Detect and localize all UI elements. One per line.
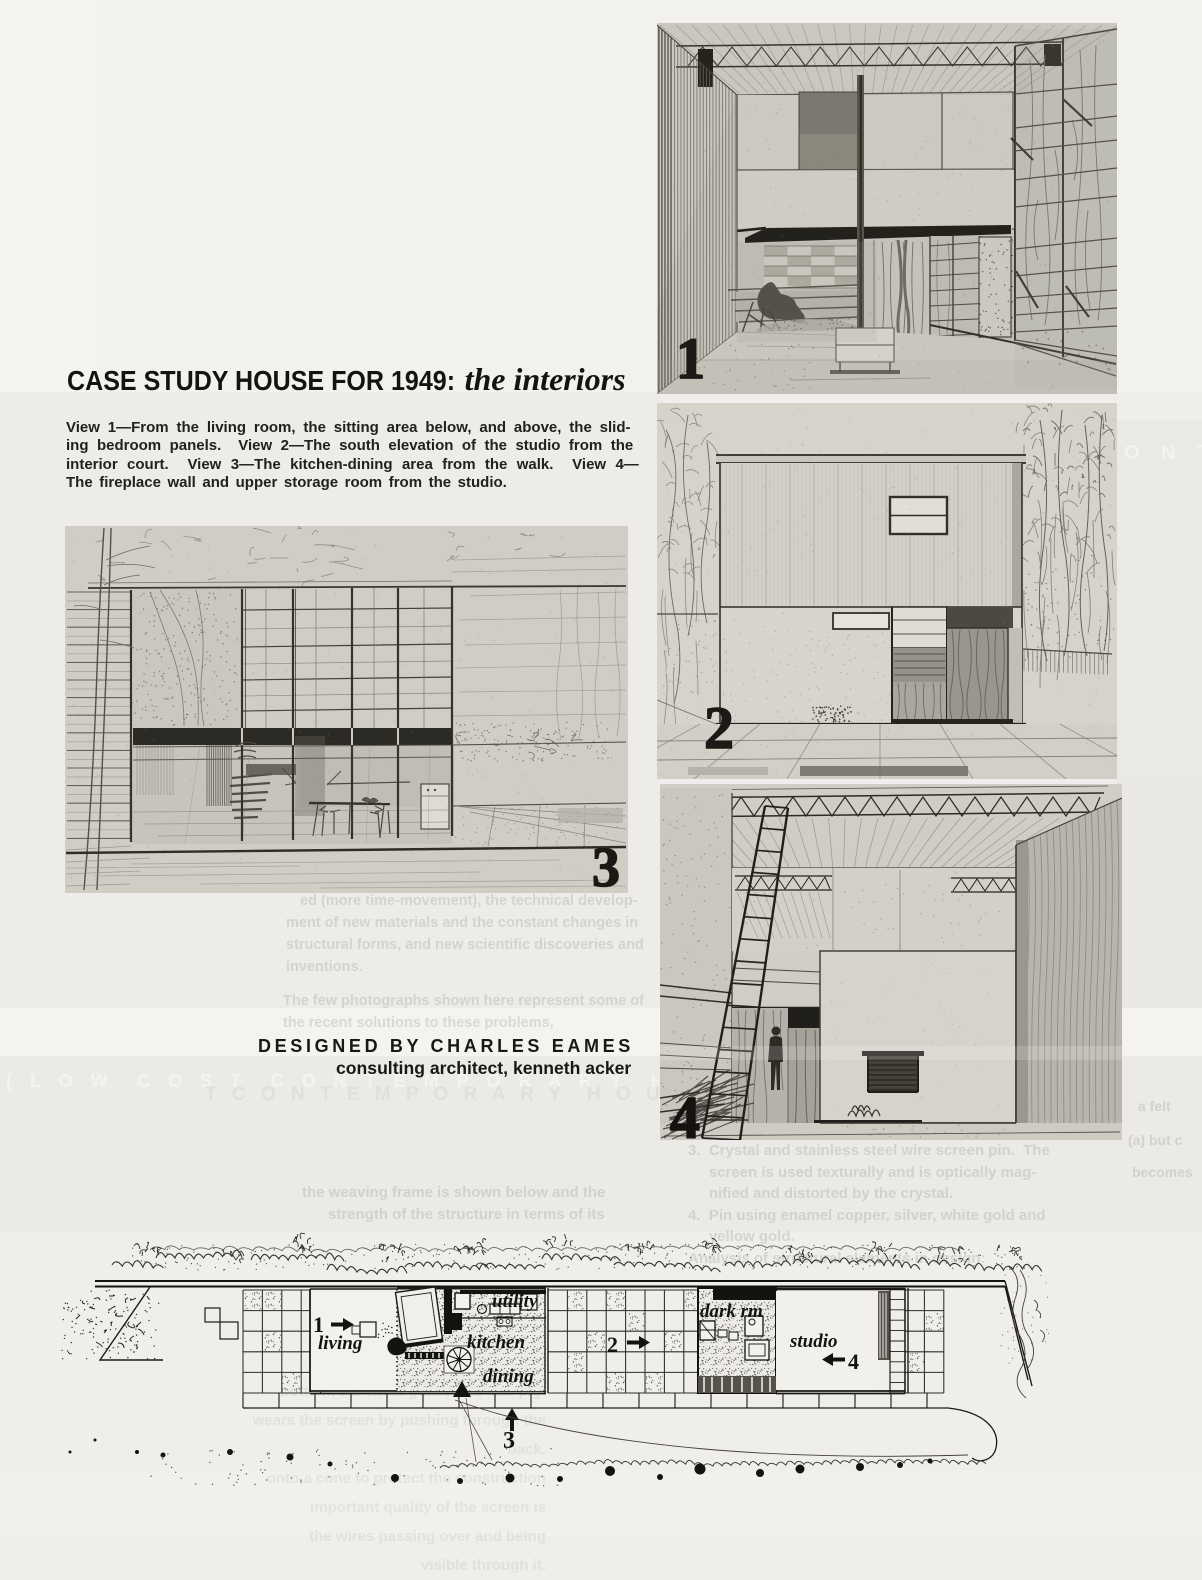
svg-text:utility: utility (492, 1291, 538, 1312)
svg-text:dining: dining (483, 1366, 534, 1387)
svg-text:dark rm: dark rm (700, 1301, 763, 1322)
svg-text:2: 2 (704, 695, 734, 761)
svg-text:4: 4 (848, 1349, 859, 1374)
svg-text:studio: studio (789, 1331, 838, 1352)
svg-text:3: 3 (592, 837, 620, 893)
svg-text:1: 1 (676, 326, 705, 391)
svg-text:1: 1 (313, 1312, 324, 1337)
svg-text:4: 4 (670, 1085, 700, 1140)
svg-text:2: 2 (607, 1332, 618, 1357)
svg-text:kitchen: kitchen (467, 1332, 525, 1353)
svg-text:living: living (318, 1333, 362, 1354)
svg-text:3: 3 (503, 1428, 515, 1454)
